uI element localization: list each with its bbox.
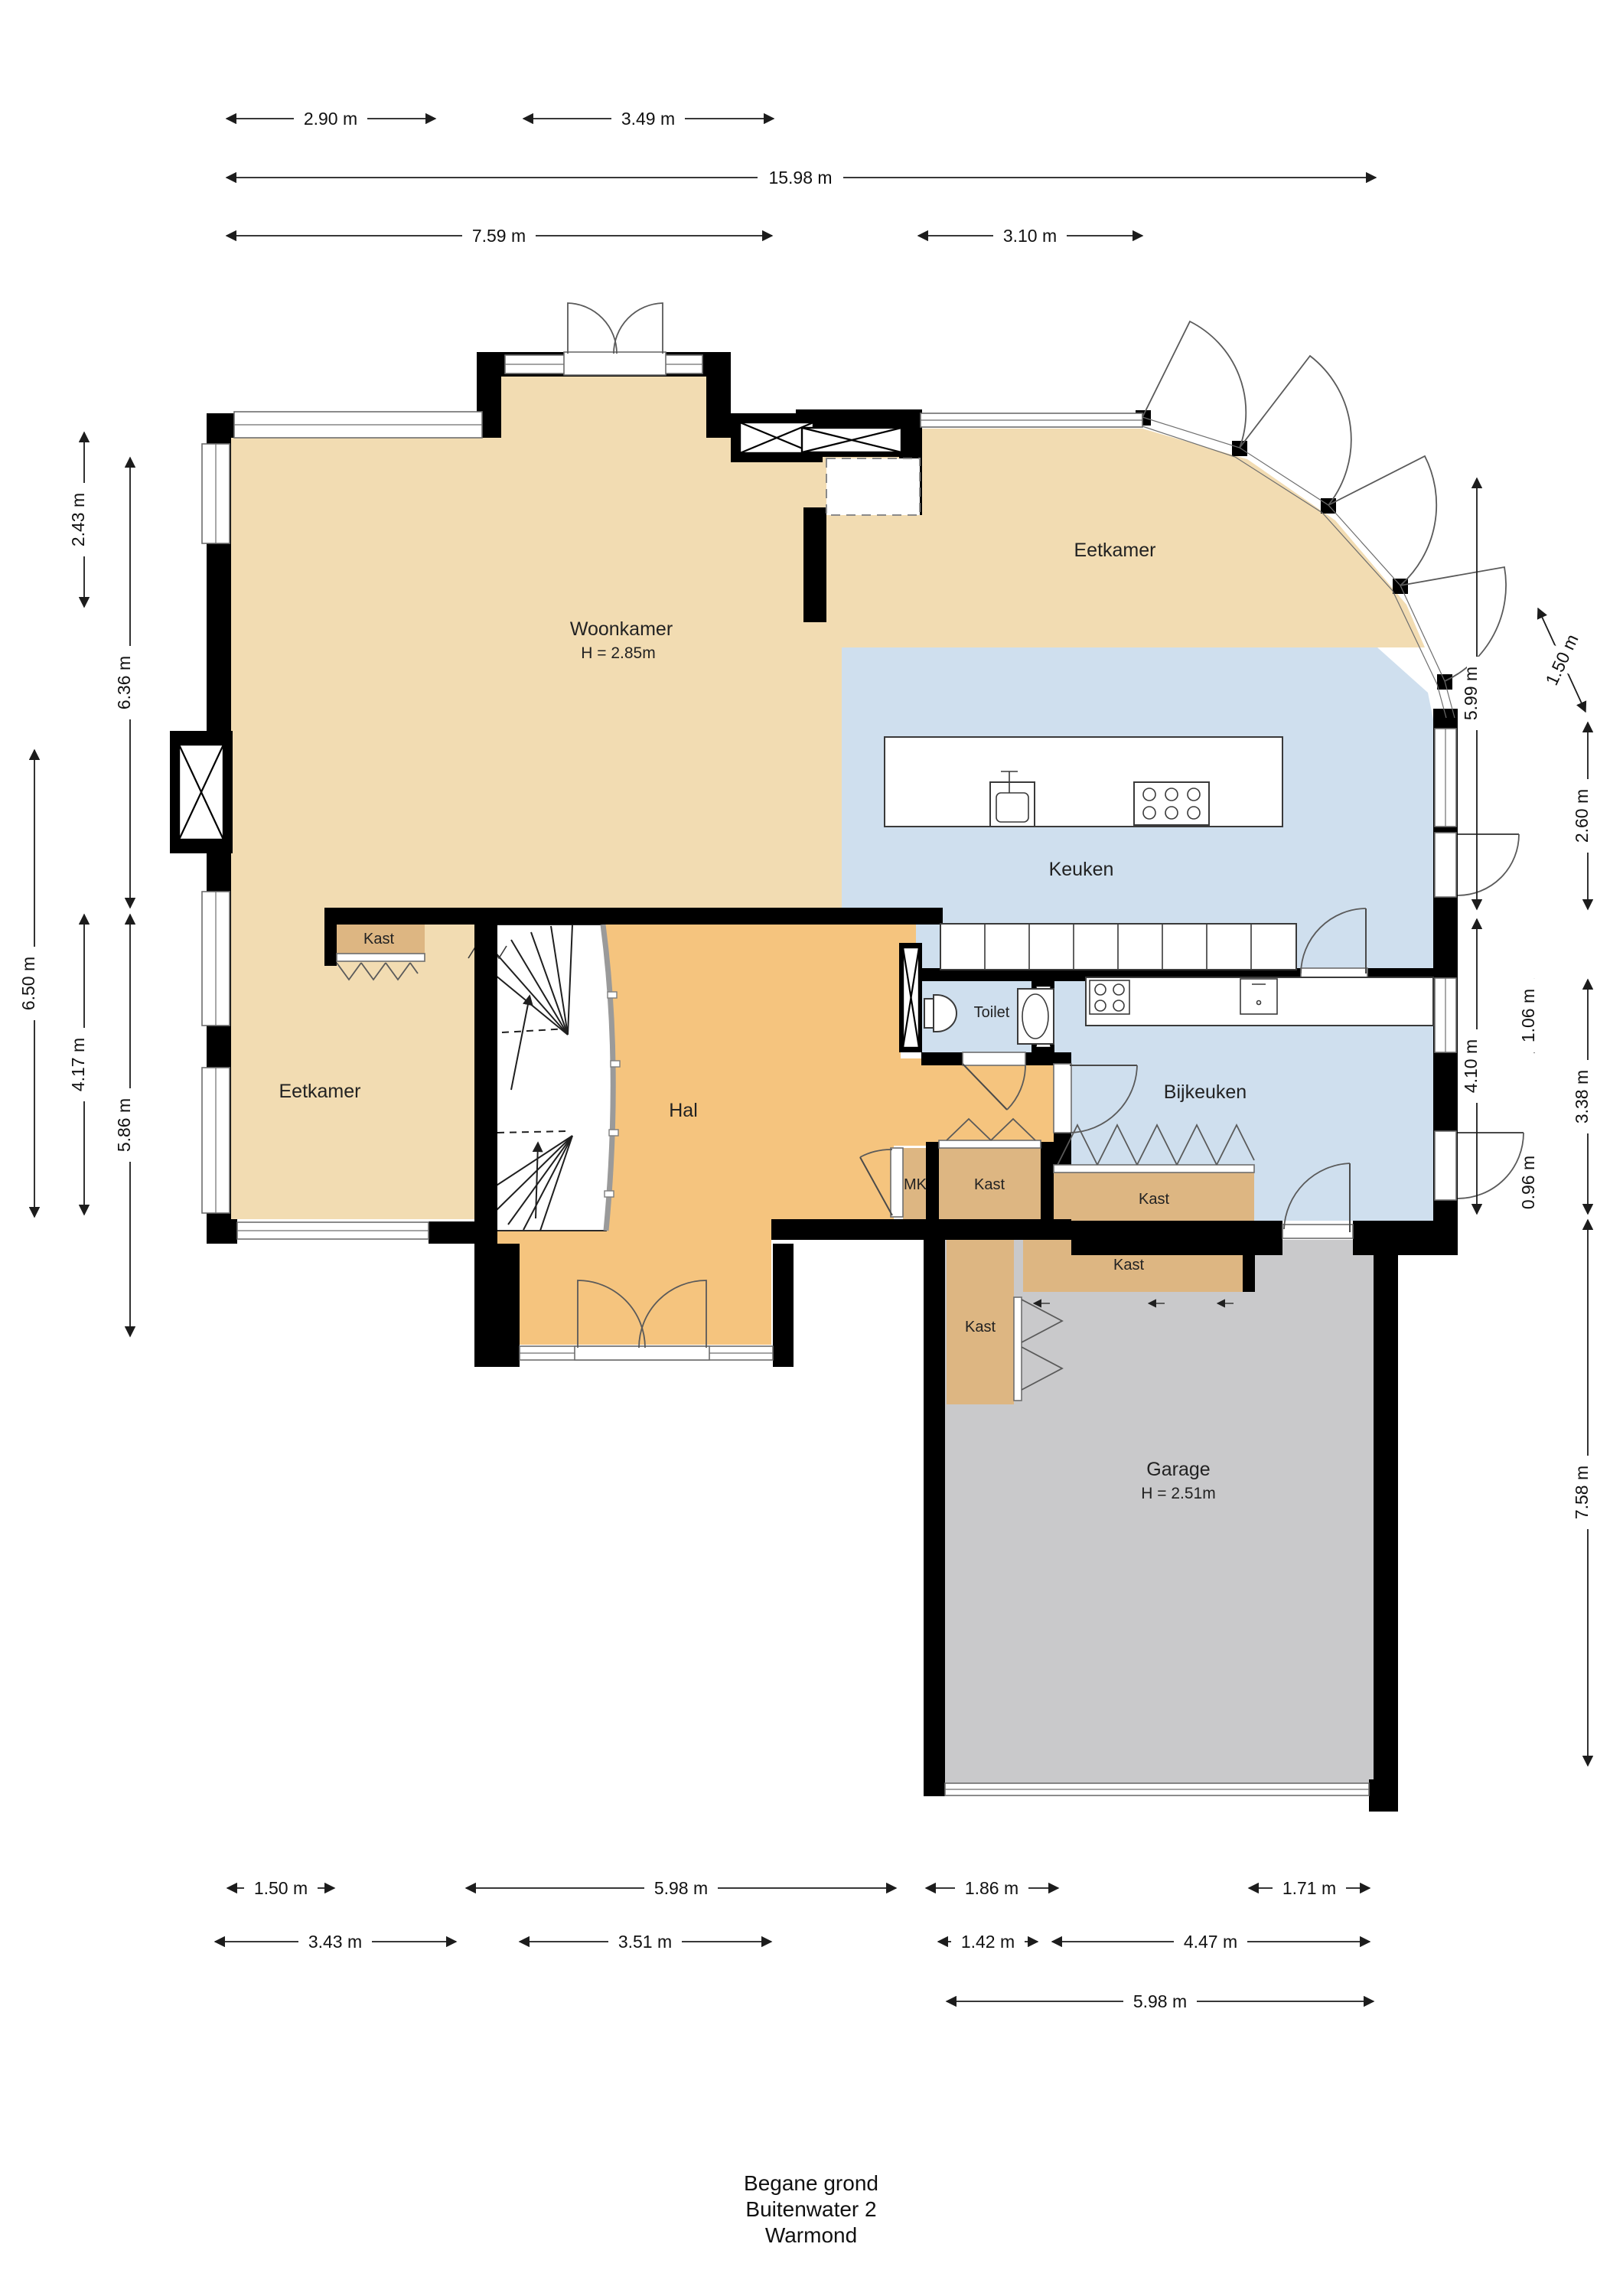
dim-right-2: 2.60 m (1572, 722, 1598, 909)
svg-text:6.36 m: 6.36 m (114, 656, 134, 709)
svg-text:5.98 m: 5.98 m (1133, 1991, 1187, 2011)
label-eetkamer-left: Eetkamer (279, 1081, 361, 1102)
svg-text:15.98 m: 15.98 m (768, 168, 832, 188)
dim-top-5: 3.10 m (918, 226, 1142, 246)
window-left-top (202, 444, 230, 543)
shaft-symbol (802, 428, 901, 452)
label-keuken: Keuken (1049, 859, 1114, 880)
dim-right-4: 1.06 m (1518, 979, 1544, 1052)
svg-text:1.71 m: 1.71 m (1282, 1878, 1336, 1898)
cabinet-row (940, 924, 1296, 970)
window-eetkamer-bottom (237, 1222, 429, 1239)
svg-text:3.49 m: 3.49 m (621, 109, 675, 129)
title-block: Begane grond Buitenwater 2 Warmond (744, 2171, 878, 2247)
svg-text:4.17 m: 4.17 m (68, 1038, 88, 1091)
toilet-bowl (924, 995, 957, 1032)
svg-text:3.51 m: 3.51 m (618, 1932, 672, 1952)
label-garage: Garage (1146, 1459, 1210, 1480)
window-left-low (202, 1068, 230, 1213)
label-kast-garage-top: Kast (1113, 1257, 1144, 1274)
dim-bot-3: 1.86 m (926, 1878, 1058, 1898)
label-woonkamer: Woonkamer (570, 618, 673, 640)
svg-text:2.43 m: 2.43 m (68, 493, 88, 546)
svg-text:3.10 m: 3.10 m (1003, 226, 1057, 246)
toilet-column-left (903, 947, 919, 1048)
kitchen-island (885, 737, 1282, 827)
dim-left-5: 5.86 m (114, 915, 140, 1336)
door-bijkeuken-right (1435, 1131, 1524, 1200)
dim-bot-7: 1.42 m (938, 1932, 1038, 1952)
label-eetkamer-top: Eetkamer (1074, 540, 1156, 561)
dim-top-4: 7.59 m (227, 226, 772, 246)
dim-bot-8: 4.47 m (1052, 1932, 1370, 1952)
dim-left-2: 6.36 m (114, 458, 140, 908)
svg-text:5.99 m: 5.99 m (1461, 667, 1481, 720)
dim-right-slanted: 1.50 m (1524, 608, 1599, 712)
label-garage-height: H = 2.51m (1141, 1485, 1215, 1502)
window-left-mid (202, 892, 230, 1026)
dim-bot-2: 5.98 m (466, 1878, 896, 1898)
window-top-310 (921, 413, 1142, 427)
cooktop (1134, 782, 1209, 825)
dim-bot-4: 1.71 m (1249, 1878, 1370, 1898)
svg-text:4.47 m: 4.47 m (1184, 1932, 1237, 1952)
svg-text:0.96 m: 0.96 m (1518, 1156, 1538, 1209)
window-garage-door (945, 1783, 1369, 1795)
svg-text:2.90 m: 2.90 m (304, 109, 357, 129)
label-toilet: Toilet (974, 1004, 1010, 1021)
svg-text:4.10 m: 4.10 m (1461, 1039, 1481, 1093)
label-kast-hal: Kast (363, 931, 394, 947)
label-kast-bijkeuken: Kast (1139, 1191, 1169, 1208)
dim-bot-6: 3.51 m (520, 1932, 771, 1952)
label-bijkeuken: Bijkeuken (1164, 1081, 1247, 1103)
window-right-keuken (1435, 729, 1456, 827)
svg-text:7.58 m: 7.58 m (1572, 1466, 1592, 1519)
dim-top-3: 15.98 m (227, 168, 1376, 188)
dim-right-3: 4.10 m (1461, 919, 1487, 1214)
dim-bot-5: 3.43 m (215, 1932, 456, 1952)
svg-text:1.86 m: 1.86 m (965, 1878, 1018, 1898)
svg-text:3.43 m: 3.43 m (308, 1932, 362, 1952)
svg-text:1.06 m: 1.06 m (1518, 989, 1538, 1042)
svg-text:1.50 m: 1.50 m (254, 1878, 308, 1898)
window-right-bijkeuken (1435, 978, 1456, 1052)
svg-text:1.42 m: 1.42 m (961, 1932, 1015, 1952)
title-city: Warmond (765, 2223, 857, 2247)
washbasin (1018, 989, 1054, 1044)
label-kast-mk-side: Kast (974, 1176, 1005, 1193)
dim-bot-1: 1.50 m (227, 1878, 334, 1898)
floorplan-page: Woonkamer H = 2.85m Eetkamer Eetkamer Ke… (0, 0, 1623, 2296)
dim-right-6: 0.96 m (1518, 1146, 1544, 1219)
dim-top-2: 3.49 m (523, 109, 774, 129)
dim-right-1: 5.99 m (1461, 478, 1487, 909)
floorplan-drawing: Woonkamer H = 2.85m Eetkamer Eetkamer Ke… (0, 0, 1623, 2296)
french-doors-top (564, 303, 666, 375)
dim-right-5: 3.38 m (1572, 980, 1598, 1214)
svg-text:5.86 m: 5.86 m (114, 1098, 134, 1152)
label-woonkamer-height: H = 2.85m (581, 644, 655, 662)
dim-bot-9: 5.98 m (947, 1991, 1374, 2011)
dim-left-1: 2.43 m (68, 432, 94, 607)
window-topleft (234, 412, 482, 438)
svg-text:6.50 m: 6.50 m (18, 957, 38, 1010)
title-address: Buitenwater 2 (745, 2197, 876, 2221)
dim-right-7: 7.58 m (1572, 1220, 1598, 1766)
room-floors (231, 377, 1433, 1783)
title-floor: Begane grond (744, 2171, 878, 2195)
dim-left-3: 6.50 m (18, 750, 44, 1217)
svg-text:3.38 m: 3.38 m (1572, 1070, 1592, 1124)
void-niche (826, 458, 920, 515)
label-mk: MK (904, 1176, 927, 1193)
fireplace-symbol (179, 745, 223, 840)
dim-top-1: 2.90 m (227, 109, 435, 129)
label-hal: Hal (669, 1100, 698, 1121)
label-kast-garage-left: Kast (965, 1319, 996, 1336)
svg-text:5.98 m: 5.98 m (654, 1878, 708, 1898)
svg-text:2.60 m: 2.60 m (1572, 789, 1592, 843)
svg-text:7.59 m: 7.59 m (472, 226, 526, 246)
dim-left-4: 4.17 m (68, 915, 94, 1215)
bijkeuken-counter (1086, 977, 1433, 1026)
